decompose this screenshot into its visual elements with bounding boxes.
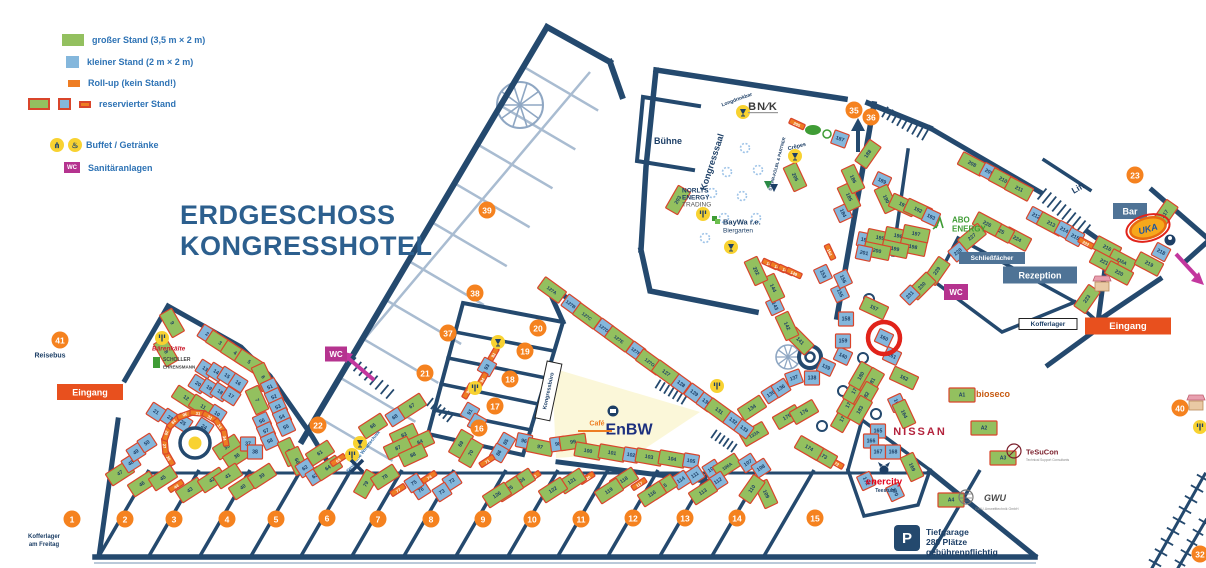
label-caf-: Café: [589, 421, 604, 428]
stair-tread: [375, 380, 383, 389]
section-badge-20: 20: [530, 320, 547, 337]
legend-item-reserved: reservierter Stand: [28, 98, 328, 110]
stand-104: 104: [658, 450, 686, 468]
label-enbw: EnBW: [605, 422, 653, 439]
section-badge-17: 17: [487, 398, 504, 415]
stand-label-168: 168: [889, 450, 898, 456]
badge-number: 41: [55, 336, 65, 346]
stand-39: 39: [247, 463, 276, 489]
stair-tread: [1072, 217, 1081, 228]
room-box-label: Schließfächer: [971, 255, 1014, 262]
badge-number: 35: [849, 106, 859, 116]
bay-separator: [764, 470, 814, 556]
stair-tread: [711, 430, 717, 438]
room-box-label: WC: [949, 288, 963, 297]
room-box-wc: WC: [944, 284, 968, 300]
hall-column: [723, 168, 732, 177]
exit-arrow-head: [851, 118, 865, 131]
drink-icon: ♨: [68, 138, 82, 152]
drink-icon: [788, 149, 802, 163]
label-baywa-r-e-: BayWa r.e.: [723, 218, 761, 227]
room-box-label: Rezeption: [1018, 271, 1061, 281]
legend-item-buffet: ⋔ ♨ Buffet / Getränke: [50, 138, 328, 152]
legend-item-rollup: Roll-up (kein Stand!): [68, 78, 328, 88]
stair-tread: [723, 438, 729, 446]
hall-column: [754, 166, 763, 175]
label-teestube: Teestube: [875, 488, 897, 494]
stand-206: 206: [783, 162, 807, 191]
badge-number: 37: [443, 329, 453, 339]
section-badge-7: 7: [370, 511, 387, 528]
stand-149: 149: [785, 267, 802, 279]
legend: großer Stand (3,5 m × 2 m) kleiner Stand…: [28, 34, 328, 183]
section-badge-12: 12: [625, 510, 642, 527]
stair-tread: [1062, 209, 1071, 220]
drink-icon: [491, 335, 505, 349]
badge-number: 39: [482, 206, 492, 216]
stair-tread: [386, 389, 394, 398]
badge-number: 16: [474, 424, 484, 434]
stand-label-166: 166: [867, 439, 876, 445]
label-bioseco: bioseco: [976, 389, 1011, 399]
kiosk-roof: [1093, 276, 1111, 281]
legend-item-klein: kleiner Stand (2 m × 2 m): [66, 56, 328, 68]
kiosk-icon: [1187, 395, 1205, 410]
fork-icon: [710, 379, 724, 393]
stand-label-167: 167: [874, 450, 883, 456]
wing-partition: [476, 144, 552, 189]
badge-number: 20: [533, 324, 543, 334]
stand-134: 134: [737, 395, 766, 421]
section-badge-3: 3: [166, 511, 183, 528]
floor-plan-page: 9823456713141516201918171211102123252451…: [0, 0, 1206, 568]
label-bn-k: BN∕K: [748, 101, 778, 113]
stand-label-A3: A3: [1000, 456, 1007, 462]
rotunda-column-core: [806, 353, 815, 362]
badge-number: 4: [225, 515, 230, 525]
stair-tread: [668, 388, 673, 397]
cafe-cup-glyph: [610, 409, 616, 413]
label-norlys: NORLYS: [682, 188, 709, 195]
room-box-rezeption: Rezeption: [1003, 267, 1077, 284]
kiosk-roof: [1187, 395, 1205, 400]
section-badge-11: 11: [573, 511, 590, 528]
legend-item-gross: großer Stand (3,5 m × 2 m): [62, 34, 328, 46]
stand-142: 142: [775, 311, 799, 340]
label-biergarten: Biergarten: [723, 228, 753, 235]
section-badge-8: 8: [423, 511, 440, 528]
label-trading: TRADING: [682, 202, 711, 209]
drink-icon: [353, 436, 367, 450]
stair-tread: [1077, 221, 1086, 232]
legend-label: kleiner Stand (2 m × 2 m): [87, 57, 193, 67]
fork-icon: ⋔: [50, 138, 64, 152]
room-box-label: Eingang: [1109, 321, 1147, 332]
room-box-label: P: [902, 530, 912, 547]
section-badge-2: 2: [117, 511, 134, 528]
legend-label: Buffet / Getränke: [86, 140, 159, 150]
stair-tread: [719, 436, 725, 444]
stand-label-A2: A2: [981, 426, 988, 432]
info-circle: [189, 437, 202, 450]
gross-stand-swatch: [62, 34, 84, 46]
room-box-label: Kofferlager: [1031, 321, 1066, 328]
badge-number: 14: [732, 514, 742, 524]
drink-icon: [736, 105, 750, 119]
stand-154: 154: [824, 244, 836, 261]
stair-tread: [727, 441, 733, 449]
badge-number: 13: [680, 514, 690, 524]
stand-174: 174: [794, 435, 824, 460]
badge-number: 3: [172, 515, 177, 525]
badge-number: 17: [490, 402, 500, 412]
wc-stairs-arrow-shaft: [348, 358, 374, 380]
room-box-label: Bar: [1122, 207, 1138, 217]
stand-160: 160: [874, 328, 894, 347]
bnk-underline: [748, 112, 778, 113]
badge-number: 9: [481, 515, 486, 525]
badge-number: 8: [429, 515, 434, 525]
section-badge-22: 22: [310, 417, 327, 434]
stand-187: 187: [831, 130, 850, 148]
badge-number: 7: [376, 515, 381, 525]
reserved-rollup-swatch: [79, 101, 91, 108]
section-badge-32: 32: [1192, 546, 1206, 563]
stair-tread: [715, 433, 721, 441]
stair-tread: [1067, 213, 1076, 224]
badge-number: 6: [325, 514, 330, 524]
label-tiefgarage: Tiefgarage: [926, 527, 969, 537]
page-title: ERDGESCHOSS KONGRESSHOTEL: [180, 200, 433, 262]
badge-number: 40: [1175, 404, 1185, 414]
badge-number: 1: [70, 515, 75, 525]
label-gwu: GWU: [984, 493, 1006, 503]
label-enercity: enercity: [866, 477, 903, 488]
kiosk-icon: [1093, 276, 1111, 291]
stair-tread: [660, 382, 665, 391]
label-gwu-umwelttechnik-gmbh: GWU-Umwelttechnik GmbH: [975, 507, 1019, 511]
section-badge-13: 13: [677, 510, 694, 527]
stair-tread: [1057, 205, 1066, 216]
fork-icon: [468, 381, 482, 395]
badge-number: 19: [520, 347, 530, 357]
badge-number: 32: [1195, 550, 1205, 560]
stand-211: 211: [1004, 177, 1034, 202]
badge-number: 10: [527, 515, 537, 525]
hall-column: [741, 144, 750, 153]
hall-column: [701, 234, 710, 243]
badge-number: 11: [577, 515, 586, 525]
stand-222: 222: [1078, 237, 1095, 250]
section-badge-19: 19: [517, 343, 534, 360]
stand-label-38: 38: [252, 450, 258, 456]
fork-icon: [1193, 420, 1206, 434]
stand-167: 167: [871, 445, 886, 459]
reserved-klein-swatch: [58, 98, 71, 110]
section-badge-41: 41: [52, 332, 69, 349]
legend-label: Roll-up (kein Stand!): [88, 78, 176, 88]
section-badge-5: 5: [268, 511, 285, 528]
label-energy: ENERGY: [952, 225, 986, 234]
stand-158: 158: [839, 312, 854, 326]
stand-157: 157: [859, 296, 888, 320]
label-lift: Lift: [1070, 180, 1087, 195]
section-badge-10: 10: [524, 511, 541, 528]
kiosk-body: [1189, 401, 1203, 410]
room-box-eingang: Eingang: [57, 384, 123, 400]
section-badge-21: 21: [417, 365, 434, 382]
column: [871, 409, 881, 419]
badge-number: 5: [274, 515, 279, 525]
klein-stand-swatch: [66, 56, 79, 68]
label-kongresssaal: Kongresssaal: [698, 132, 726, 191]
stand-78: 78: [370, 464, 399, 490]
wing-partition: [431, 222, 507, 267]
section-badge-23: 23: [1127, 167, 1144, 184]
stair-tread: [677, 393, 682, 402]
label-ehrensmann: EHRENSMANN: [163, 365, 195, 370]
wing-partition: [522, 66, 598, 111]
baywa-logo-mark2: [715, 219, 720, 224]
badge-number: 2: [123, 515, 128, 525]
room-box-label: Eingang: [72, 388, 108, 398]
label-280-pl-tze: 280 Plätze: [926, 537, 967, 547]
stand-A1: A1: [949, 388, 975, 402]
fork-icon: [696, 207, 710, 221]
stand-label-A1: A1: [959, 393, 966, 399]
enercity-mascot: [880, 466, 889, 475]
stand-205: 205: [788, 118, 805, 130]
room-box-wc: WC: [325, 347, 347, 362]
legend-label: reservierter Stand: [99, 99, 176, 109]
section-badge-4: 4: [219, 511, 236, 528]
stand-159: 159: [836, 334, 851, 348]
stair-tread: [681, 396, 686, 405]
drink-icon: [724, 240, 738, 254]
section-badge-40: 40: [1172, 400, 1189, 417]
room-box-eingang: Eingang: [1085, 318, 1171, 335]
stair-tread: [655, 380, 660, 389]
badge-number: 38: [470, 289, 480, 299]
rollup-swatch: [68, 80, 80, 87]
stand-127A: 127A: [537, 277, 566, 304]
label-energy: ENERGY: [682, 195, 710, 202]
label-abo: ABO: [952, 216, 970, 225]
stand-38: 38: [248, 445, 263, 459]
stand-138: 138: [805, 371, 820, 385]
room-box-p: P: [894, 525, 920, 551]
room-box-kofferlager: Kofferlager: [1019, 319, 1077, 330]
stand-label-159: 159: [839, 339, 848, 345]
stand-119: 119: [594, 478, 623, 504]
stand-71: 71: [479, 454, 496, 468]
stair-tread: [673, 390, 678, 399]
label-b-renk-lte: Bärenkälte: [152, 346, 186, 353]
info-point: [180, 428, 210, 458]
stand-140: 140: [833, 346, 853, 365]
label-scholler: SCHOLLER: [163, 357, 191, 363]
stand-label-158: 158: [842, 317, 851, 323]
cafe-underline: [578, 430, 612, 432]
stair-tread: [1042, 193, 1051, 204]
stair-tread: [922, 130, 928, 140]
section-badge-9: 9: [475, 511, 492, 528]
room-box-schließfächer: Schließfächer: [959, 252, 1025, 264]
scholler-mark: [153, 357, 160, 368]
reserved-gross-swatch: [28, 98, 50, 110]
stair-tread: [1047, 197, 1056, 208]
stand-201: 201: [855, 245, 873, 262]
section-badge-14: 14: [729, 510, 746, 527]
porter-icon-head: [1168, 236, 1172, 240]
section-badge-35: 35: [846, 102, 863, 119]
badge-number: 21: [420, 369, 430, 379]
section-badge-15: 15: [807, 510, 824, 527]
green-ring-logo: [823, 130, 831, 138]
stand-A2: A2: [971, 421, 997, 435]
badge-number: 23: [1130, 171, 1140, 181]
stand-164: 164: [892, 399, 916, 428]
stair-tread: [381, 385, 389, 394]
stand-label-138: 138: [808, 376, 817, 382]
section-badge-6: 6: [319, 510, 336, 527]
stand-153: 153: [813, 264, 832, 284]
badge-number: 36: [866, 113, 876, 123]
stand-168: 168: [886, 445, 901, 459]
stand-label-A4: A4: [948, 498, 955, 504]
section-badge-16: 16: [471, 420, 488, 437]
badge-number: 12: [628, 514, 638, 524]
section-badge-39: 39: [479, 202, 496, 219]
title-line1: ERDGESCHOSS: [180, 200, 433, 231]
section-badge-1: 1: [64, 511, 81, 528]
label-tesucon: TeSuCon: [1026, 448, 1059, 457]
legend-label: Sanitäranlagen: [88, 163, 153, 173]
stair-tread: [664, 385, 669, 394]
wc-icon: WC: [64, 162, 80, 173]
kiosk-body: [1095, 282, 1109, 291]
green-oval-logo: [805, 125, 821, 135]
title-line2: KONGRESSHOTEL: [180, 231, 433, 262]
badge-number: 18: [505, 375, 515, 385]
label-b-hne: Bühne: [654, 136, 682, 146]
stair-tread: [427, 398, 433, 406]
label-kofferlager: Kofferlager: [28, 534, 61, 540]
label-nissan: NISSAN: [893, 426, 947, 438]
label-am-freitag: am Freitag: [29, 542, 60, 548]
hall-column: [738, 192, 747, 201]
stand-176: 176: [789, 399, 819, 424]
section-badge-18: 18: [502, 371, 519, 388]
label-geb-hrenpflichtig: gebührenpflichtig: [926, 547, 998, 557]
stair-tread: [1052, 201, 1061, 212]
legend-label: großer Stand (3,5 m × 2 m): [92, 35, 205, 45]
badge-number: 15: [810, 514, 820, 524]
label-reisebus: Reisebus: [34, 353, 65, 360]
room-box-label: WC: [329, 350, 343, 359]
column: [817, 421, 827, 431]
section-badge-37: 37: [440, 325, 457, 342]
legend-item-wc: WC Sanitäranlagen: [64, 162, 328, 173]
section-badge-36: 36: [863, 109, 880, 126]
stair-tread: [917, 127, 923, 137]
fork-icon: [155, 331, 169, 345]
label-technical-support-consultants: Technical Support Consultants: [1026, 458, 1069, 462]
section-badge-38: 38: [467, 285, 484, 302]
stand-169: 169: [900, 452, 924, 481]
stand-162: 162: [889, 366, 918, 390]
stair-tread: [731, 444, 737, 452]
badge-number: 22: [313, 421, 323, 431]
